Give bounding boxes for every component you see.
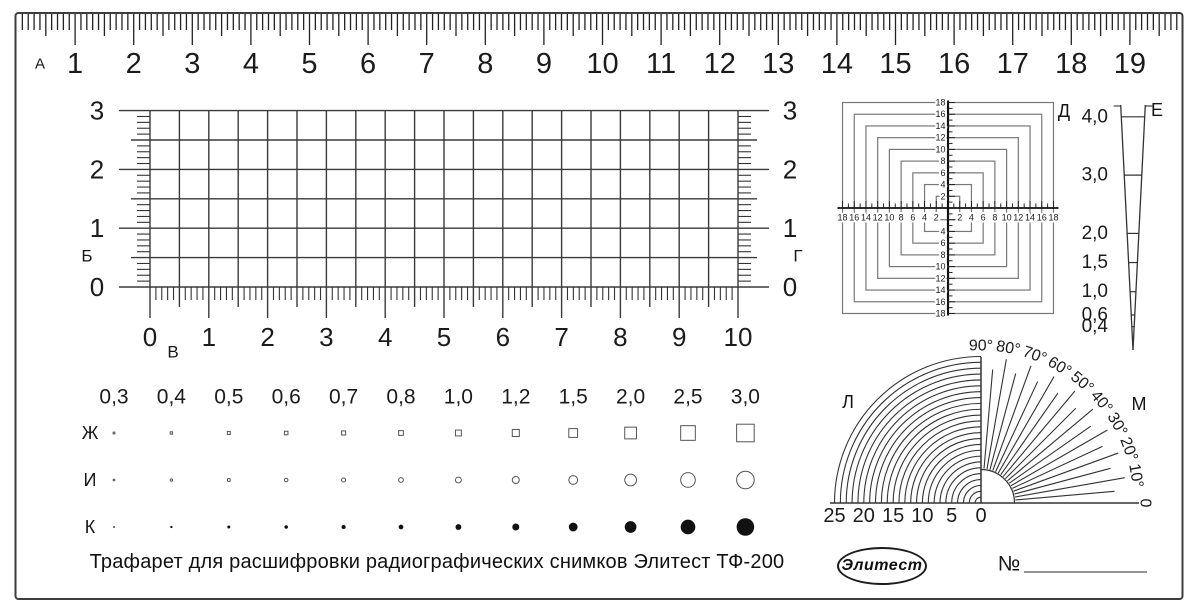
target-axis-number: 2 bbox=[940, 191, 945, 201]
size-header-number: 0,5 bbox=[214, 386, 243, 409]
ruler-number: 14 bbox=[821, 48, 853, 80]
ruler-number: 4 bbox=[243, 48, 259, 80]
thickness-wedge: 4,03,02,01,51,00,60,4 bbox=[1082, 105, 1153, 350]
protractor-angle-label: 20° bbox=[1116, 435, 1140, 464]
target-axis-number: 2 bbox=[934, 213, 939, 223]
ruler-letter: А bbox=[35, 57, 45, 72]
measuring-grid: 33221100012345678910 bbox=[90, 96, 797, 352]
ruler-number: 16 bbox=[938, 48, 970, 80]
protractor-left-letter: Л bbox=[842, 393, 854, 411]
protractor-radius-number: 0 bbox=[975, 505, 986, 527]
grid-row-number: 0 bbox=[90, 272, 104, 302]
target-axis-number: 2 bbox=[957, 213, 962, 223]
target-axis-number: 6 bbox=[940, 238, 945, 248]
reference-dot bbox=[569, 523, 578, 532]
wedge-thickness-number: 2,0 bbox=[1082, 223, 1108, 244]
size-header-number: 2,0 bbox=[616, 386, 645, 409]
concentric-squares-target: 2224444666688881010101012121212141414141… bbox=[838, 98, 1059, 319]
elitest-logo: Элитест bbox=[837, 547, 927, 585]
reference-square bbox=[113, 432, 115, 434]
grid-col-number: 9 bbox=[672, 322, 686, 352]
target-axis-number: 14 bbox=[935, 285, 945, 295]
reference-circle bbox=[737, 471, 755, 489]
reference-dot bbox=[681, 520, 696, 535]
protractor: 90°80°70°60°50°40°30°20°10°02520151050 bbox=[823, 338, 1153, 528]
ruler-number: 17 bbox=[997, 48, 1029, 80]
ruler-number: 10 bbox=[586, 48, 618, 80]
ruler-number: 15 bbox=[879, 48, 911, 80]
target-axis-number: 12 bbox=[873, 213, 883, 223]
target-axis-number: 14 bbox=[1025, 213, 1035, 223]
reference-square bbox=[681, 426, 696, 441]
grid-col-number: 6 bbox=[496, 322, 510, 352]
target-axis-number: 6 bbox=[940, 168, 945, 178]
size-header-number: 0,6 bbox=[272, 386, 301, 409]
wedge-thickness-number: 1,0 bbox=[1082, 281, 1108, 302]
protractor-angle-label: 80° bbox=[995, 338, 1022, 359]
protractor-angle-label: 0 bbox=[1137, 499, 1154, 508]
ruler-number: 9 bbox=[536, 48, 552, 80]
grid-col-number: 3 bbox=[319, 322, 333, 352]
grid-col-number: 0 bbox=[143, 322, 157, 352]
grid-left-letter: Б bbox=[81, 248, 92, 265]
size-header-number: 0,7 bbox=[329, 386, 358, 409]
reference-square bbox=[455, 430, 461, 436]
target-axis-number: 4 bbox=[969, 213, 974, 223]
reference-square bbox=[399, 431, 404, 436]
target-axis-number: 18 bbox=[1048, 213, 1058, 223]
grid-col-number: 4 bbox=[378, 322, 392, 352]
grid-row-number: 3 bbox=[783, 96, 797, 126]
protractor-radius-number: 10 bbox=[911, 505, 933, 527]
protractor-radius-number: 25 bbox=[823, 505, 845, 527]
target-axis-number: 4 bbox=[940, 180, 945, 190]
radiographic-template: 1234567891011121314151617181933221100012… bbox=[0, 0, 1200, 616]
template-artwork: 1234567891011121314151617181933221100012… bbox=[0, 0, 1200, 616]
protractor-radius-number: 5 bbox=[946, 505, 957, 527]
ruler-scale: 12345678910111213141516171819 bbox=[22, 14, 1176, 80]
target-axis-number: 18 bbox=[935, 308, 945, 318]
protractor-angle-label: 90° bbox=[969, 338, 993, 355]
reference-dot bbox=[113, 526, 115, 528]
reference-dot bbox=[399, 525, 404, 530]
protractor-angle-label: 10° bbox=[1125, 462, 1146, 489]
size-header-number: 1,0 bbox=[444, 386, 473, 409]
reference-circle bbox=[512, 476, 519, 483]
protractor-angle-label: 40° bbox=[1087, 387, 1116, 416]
ruler-number: 8 bbox=[477, 48, 493, 80]
grid-col-number: 1 bbox=[202, 322, 216, 352]
target-axis-number: 6 bbox=[981, 213, 986, 223]
target-axis-number: 12 bbox=[1013, 213, 1023, 223]
reference-square bbox=[569, 429, 578, 438]
grid-row-number: 1 bbox=[90, 213, 104, 243]
size-header-number: 3,0 bbox=[731, 386, 760, 409]
circle-row-letter: И bbox=[84, 471, 97, 489]
size-header-number: 1,5 bbox=[559, 386, 588, 409]
grid-col-number: 5 bbox=[437, 322, 451, 352]
wedge-thickness-number: 4,0 bbox=[1082, 106, 1108, 127]
reference-dot bbox=[342, 525, 346, 529]
reference-dot bbox=[625, 521, 637, 533]
grid-row-number: 2 bbox=[90, 154, 104, 184]
reference-square bbox=[737, 424, 755, 442]
reference-circle bbox=[455, 477, 461, 483]
ruler-number: 6 bbox=[360, 48, 376, 80]
target-axis-number: 8 bbox=[940, 156, 945, 166]
reference-dot bbox=[512, 523, 519, 530]
grid-row-number: 3 bbox=[90, 96, 104, 126]
ruler-number: 1 bbox=[67, 48, 83, 80]
target-axis-number: 16 bbox=[935, 297, 945, 307]
reference-dot bbox=[737, 518, 755, 536]
grid-col-number: 10 bbox=[724, 322, 753, 352]
target-axis-number: 14 bbox=[861, 213, 871, 223]
target-axis-number: 8 bbox=[992, 213, 997, 223]
template-caption: Трафарет для расшифровки радиографически… bbox=[90, 552, 785, 572]
target-axis-number: 16 bbox=[1037, 213, 1047, 223]
reference-circle bbox=[284, 478, 288, 482]
size-header-number: 0,4 bbox=[157, 386, 187, 409]
grid-row-number: 1 bbox=[783, 213, 797, 243]
reference-circle bbox=[681, 473, 696, 488]
reference-circle bbox=[227, 479, 230, 482]
grid-right-letter: Г bbox=[793, 248, 802, 265]
protractor-angle-label: 70° bbox=[1020, 343, 1049, 367]
target-axis-number: 10 bbox=[935, 262, 945, 272]
size-header-number: 1,2 bbox=[501, 386, 530, 409]
dot-row-letter: К bbox=[85, 518, 96, 536]
ruler-number: 2 bbox=[126, 48, 142, 80]
wedge-thickness-number: 3,0 bbox=[1082, 165, 1108, 186]
target-axis-number: 10 bbox=[1002, 213, 1012, 223]
reference-circle bbox=[399, 478, 404, 483]
ruler-number: 18 bbox=[1055, 48, 1087, 80]
reference-square bbox=[284, 431, 288, 435]
target-axis-number: 8 bbox=[899, 213, 904, 223]
ruler-number: 7 bbox=[419, 48, 435, 80]
target-axis-number: 12 bbox=[935, 133, 945, 143]
grid-row-number: 2 bbox=[783, 154, 797, 184]
target-letter: Д bbox=[1058, 102, 1070, 120]
size-header-number: 0,8 bbox=[386, 386, 415, 409]
square-row-letter: Ж bbox=[82, 424, 99, 442]
ruler-number: 11 bbox=[646, 48, 676, 80]
target-axis-number: 18 bbox=[935, 98, 945, 108]
target-axis-number: 8 bbox=[940, 250, 945, 260]
size-reference-rows: 0,30,40,50,60,70,81,01,21,52,02,53,0 bbox=[99, 386, 760, 536]
reference-square bbox=[342, 431, 346, 435]
reference-circle bbox=[170, 479, 172, 481]
reference-dot bbox=[170, 526, 172, 528]
target-axis-number: 10 bbox=[884, 213, 894, 223]
target-axis-number: 14 bbox=[935, 121, 945, 131]
target-axis-number: 12 bbox=[935, 273, 945, 283]
protractor-radius-number: 20 bbox=[853, 505, 875, 527]
reference-circle bbox=[569, 476, 578, 485]
grid-col-number: 8 bbox=[613, 322, 627, 352]
reference-circle bbox=[625, 474, 637, 486]
target-axis-number: 4 bbox=[922, 213, 927, 223]
target-axis-number: 6 bbox=[910, 213, 915, 223]
target-axis-number: 16 bbox=[935, 109, 945, 119]
protractor-angle-label: 60° bbox=[1045, 354, 1074, 381]
grid-col-number: 2 bbox=[260, 322, 274, 352]
target-axis-number: 16 bbox=[849, 213, 859, 223]
wedge-thickness-number: 1,5 bbox=[1082, 252, 1108, 273]
grid-bottom-letter: В bbox=[167, 344, 178, 361]
size-header-number: 0,3 bbox=[99, 386, 128, 409]
ruler-number: 13 bbox=[762, 48, 794, 80]
reference-circle bbox=[342, 478, 346, 482]
reference-square bbox=[512, 429, 519, 436]
ruler-number: 5 bbox=[301, 48, 317, 80]
protractor-right-letter: М bbox=[1132, 395, 1147, 413]
target-axis-number: 18 bbox=[838, 213, 848, 223]
serial-number-label: № bbox=[998, 554, 1021, 575]
grid-col-number: 7 bbox=[554, 322, 568, 352]
protractor-angle-label: 30° bbox=[1104, 410, 1131, 439]
reference-square bbox=[170, 432, 172, 434]
reference-circle bbox=[113, 479, 115, 481]
template-frame bbox=[16, 13, 1183, 599]
ruler-number: 19 bbox=[1114, 48, 1146, 80]
grid-row-number: 0 bbox=[783, 272, 797, 302]
target-axis-number: 10 bbox=[935, 144, 945, 154]
reference-square bbox=[625, 427, 637, 439]
protractor-radius-number: 15 bbox=[882, 505, 904, 527]
wedge-letter: Е bbox=[1151, 101, 1163, 119]
ruler-number: 3 bbox=[184, 48, 200, 80]
logo-text: Элитест bbox=[842, 557, 923, 575]
target-axis-number: 4 bbox=[940, 226, 945, 236]
ruler-number: 12 bbox=[704, 48, 736, 80]
reference-dot bbox=[227, 526, 230, 529]
reference-square bbox=[227, 432, 230, 435]
wedge-thickness-number: 0,4 bbox=[1082, 316, 1109, 337]
reference-dot bbox=[284, 525, 288, 529]
reference-dot bbox=[455, 524, 461, 530]
size-header-number: 2,5 bbox=[673, 386, 702, 409]
